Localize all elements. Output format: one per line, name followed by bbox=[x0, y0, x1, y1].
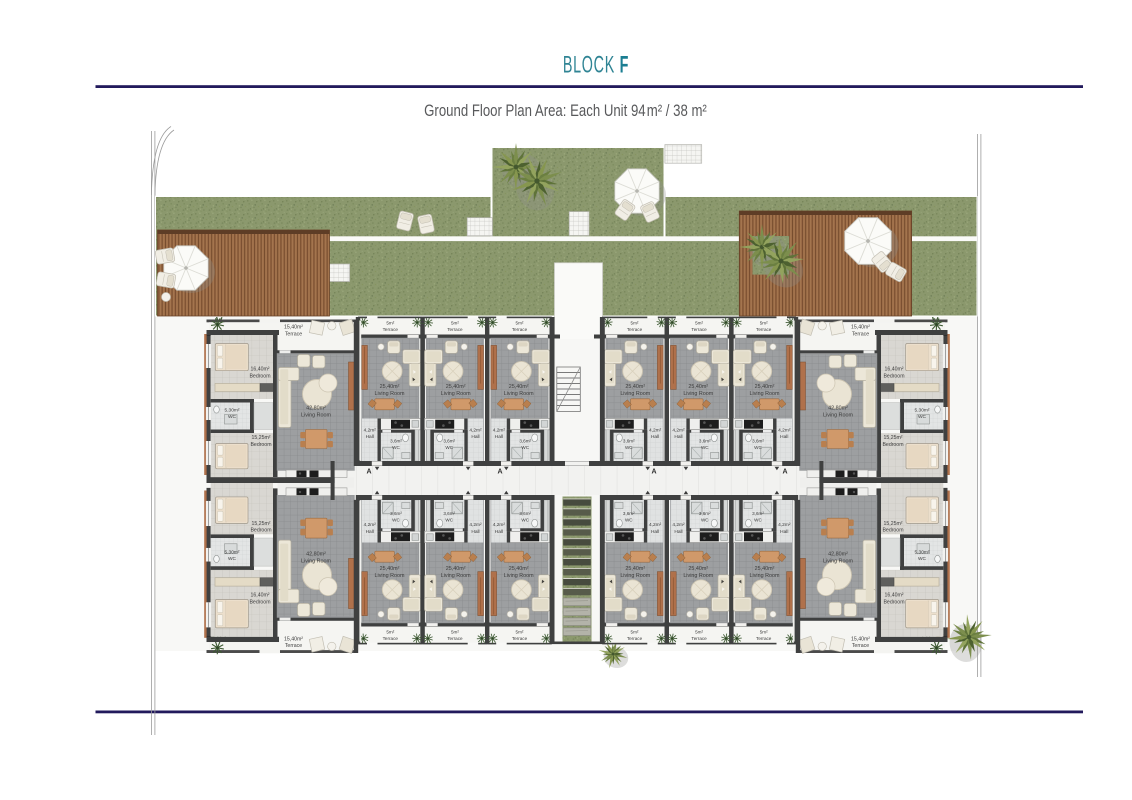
svg-text:Living Room: Living Room bbox=[504, 391, 534, 397]
svg-text:Terrace: Terrace bbox=[383, 327, 399, 332]
svg-text:Living Room: Living Room bbox=[823, 559, 853, 565]
svg-text:Hall: Hall bbox=[471, 529, 479, 535]
svg-text:15,40m²: 15,40m² bbox=[284, 636, 303, 642]
svg-text:4,2m²: 4,2m² bbox=[649, 522, 662, 528]
svg-text:Living Room: Living Room bbox=[375, 391, 405, 397]
svg-text:4,2m²: 4,2m² bbox=[469, 428, 482, 434]
svg-text:Hall: Hall bbox=[674, 434, 682, 440]
svg-text:Living Room: Living Room bbox=[620, 391, 650, 397]
svg-text:25,40m²: 25,40m² bbox=[688, 384, 708, 390]
svg-text:WC: WC bbox=[918, 414, 927, 420]
svg-text:WC: WC bbox=[521, 518, 529, 523]
svg-text:Terrace: Terrace bbox=[691, 327, 707, 332]
svg-text:25,40m²: 25,40m² bbox=[509, 566, 529, 572]
svg-text:Living Room: Living Room bbox=[683, 573, 713, 579]
svg-text:Living Room: Living Room bbox=[750, 573, 780, 579]
svg-text:Bedroom: Bedroom bbox=[250, 442, 271, 448]
svg-text:15,25m²: 15,25m² bbox=[251, 521, 270, 527]
svg-text:Terrace: Terrace bbox=[627, 327, 643, 332]
svg-text:5m²: 5m² bbox=[516, 629, 524, 634]
svg-text:5,30m²: 5,30m² bbox=[225, 408, 240, 414]
svg-text:4,2m²: 4,2m² bbox=[364, 428, 377, 434]
svg-text:3,6m²: 3,6m² bbox=[623, 511, 635, 516]
svg-text:4,2m²: 4,2m² bbox=[469, 522, 482, 528]
svg-text:5m²: 5m² bbox=[631, 320, 639, 325]
svg-text:5,30m²: 5,30m² bbox=[915, 550, 930, 556]
svg-text:WC: WC bbox=[392, 445, 400, 450]
svg-text:3,6m²: 3,6m² bbox=[390, 511, 402, 516]
svg-text:WC: WC bbox=[228, 414, 237, 420]
svg-text:25,40m²: 25,40m² bbox=[380, 384, 400, 390]
svg-text:42,80m²: 42,80m² bbox=[306, 552, 326, 558]
svg-text:WC: WC bbox=[228, 556, 237, 562]
svg-text:16,40m²: 16,40m² bbox=[884, 592, 903, 598]
svg-text:42,80m²: 42,80m² bbox=[828, 552, 848, 558]
svg-text:5,30m²: 5,30m² bbox=[225, 550, 240, 556]
svg-text:Terrace: Terrace bbox=[852, 643, 869, 649]
svg-text:4,2m²: 4,2m² bbox=[672, 428, 685, 434]
svg-text:Terrace: Terrace bbox=[285, 331, 302, 337]
svg-text:5,30m²: 5,30m² bbox=[915, 408, 930, 414]
svg-text:Hall: Hall bbox=[674, 529, 682, 535]
svg-text:A: A bbox=[497, 469, 502, 476]
svg-text:15,25m²: 15,25m² bbox=[883, 435, 902, 441]
svg-text:BLOCK F: BLOCK F bbox=[563, 52, 629, 79]
svg-text:16,40m²: 16,40m² bbox=[884, 367, 903, 373]
svg-text:Living Room: Living Room bbox=[375, 573, 405, 579]
svg-text:25,40m²: 25,40m² bbox=[755, 384, 775, 390]
svg-text:16,40m²: 16,40m² bbox=[250, 592, 269, 598]
svg-text:A: A bbox=[651, 469, 656, 476]
svg-text:3,6m²: 3,6m² bbox=[519, 439, 531, 444]
svg-text:WC: WC bbox=[625, 445, 633, 450]
svg-text:3,6m²: 3,6m² bbox=[443, 439, 455, 444]
svg-text:5m²: 5m² bbox=[695, 629, 703, 634]
svg-text:WC: WC bbox=[754, 445, 762, 450]
svg-text:25,40m²: 25,40m² bbox=[446, 384, 466, 390]
svg-text:4,2m²: 4,2m² bbox=[672, 522, 685, 528]
svg-text:Living Room: Living Room bbox=[441, 391, 471, 397]
svg-text:WC: WC bbox=[625, 518, 633, 523]
svg-text:Hall: Hall bbox=[471, 434, 479, 440]
svg-text:Living Room: Living Room bbox=[620, 573, 650, 579]
svg-text:Bedroom: Bedroom bbox=[883, 599, 904, 605]
svg-text:42,80m²: 42,80m² bbox=[828, 406, 848, 412]
svg-text:4,2m²: 4,2m² bbox=[493, 428, 506, 434]
svg-text:3,6m²: 3,6m² bbox=[699, 511, 711, 516]
svg-text:Living Room: Living Room bbox=[683, 391, 713, 397]
svg-text:Hall: Hall bbox=[780, 434, 788, 440]
svg-text:42,80m²: 42,80m² bbox=[306, 406, 326, 412]
svg-text:Terrace: Terrace bbox=[756, 636, 772, 641]
svg-text:4,2m²: 4,2m² bbox=[364, 522, 377, 528]
svg-text:Living Room: Living Room bbox=[301, 413, 331, 419]
svg-text:Terrace: Terrace bbox=[756, 327, 772, 332]
svg-text:16,40m²: 16,40m² bbox=[250, 367, 269, 373]
svg-text:3,6m²: 3,6m² bbox=[443, 511, 455, 516]
svg-text:Terrace: Terrace bbox=[512, 327, 528, 332]
svg-text:5m²: 5m² bbox=[695, 320, 703, 325]
svg-text:15,40m²: 15,40m² bbox=[851, 636, 870, 642]
svg-text:WC: WC bbox=[701, 445, 709, 450]
svg-text:5m²: 5m² bbox=[451, 629, 459, 634]
svg-text:WC: WC bbox=[701, 518, 709, 523]
svg-text:25,40m²: 25,40m² bbox=[625, 384, 645, 390]
svg-text:15,40m²: 15,40m² bbox=[284, 325, 303, 331]
svg-text:A: A bbox=[366, 469, 371, 476]
svg-text:WC: WC bbox=[918, 556, 927, 562]
svg-text:Bedroom: Bedroom bbox=[882, 442, 903, 448]
svg-text:5m²: 5m² bbox=[631, 629, 639, 634]
svg-text:Terrace: Terrace bbox=[285, 643, 302, 649]
svg-text:15,40m²: 15,40m² bbox=[851, 325, 870, 331]
svg-text:Hall: Hall bbox=[495, 434, 503, 440]
svg-text:Terrace: Terrace bbox=[852, 331, 869, 337]
svg-text:3,6m²: 3,6m² bbox=[390, 439, 402, 444]
svg-text:25,40m²: 25,40m² bbox=[380, 566, 400, 572]
svg-text:4,2m²: 4,2m² bbox=[778, 428, 791, 434]
svg-text:3,6m²: 3,6m² bbox=[699, 439, 711, 444]
svg-text:5m²: 5m² bbox=[386, 320, 394, 325]
svg-text:Living Room: Living Room bbox=[823, 413, 853, 419]
svg-text:A: A bbox=[782, 469, 787, 476]
svg-text:Living Room: Living Room bbox=[504, 573, 534, 579]
svg-text:25,40m²: 25,40m² bbox=[446, 566, 466, 572]
svg-text:Living Room: Living Room bbox=[441, 573, 471, 579]
svg-text:Hall: Hall bbox=[651, 434, 659, 440]
svg-text:Hall: Hall bbox=[651, 529, 659, 535]
svg-text:WC: WC bbox=[392, 518, 400, 523]
svg-text:3,6m²: 3,6m² bbox=[623, 439, 635, 444]
svg-text:25,40m²: 25,40m² bbox=[688, 566, 708, 572]
svg-text:Bedroom: Bedroom bbox=[883, 373, 904, 379]
svg-text:Hall: Hall bbox=[366, 434, 374, 440]
svg-text:4,2m²: 4,2m² bbox=[778, 522, 791, 528]
svg-text:25,40m²: 25,40m² bbox=[625, 566, 645, 572]
svg-text:Bedroom: Bedroom bbox=[249, 373, 270, 379]
svg-text:5m²: 5m² bbox=[451, 320, 459, 325]
svg-text:WC: WC bbox=[521, 445, 529, 450]
svg-text:Bedroom: Bedroom bbox=[250, 528, 271, 534]
svg-text:Terrace: Terrace bbox=[691, 636, 707, 641]
svg-text:5m²: 5m² bbox=[516, 320, 524, 325]
svg-text:3,6m²: 3,6m² bbox=[519, 511, 531, 516]
svg-text:Terrace: Terrace bbox=[512, 636, 528, 641]
svg-text:5m²: 5m² bbox=[386, 629, 394, 634]
svg-text:Living Room: Living Room bbox=[301, 559, 331, 565]
svg-text:Terrace: Terrace bbox=[627, 636, 643, 641]
svg-text:Terrace: Terrace bbox=[383, 636, 399, 641]
svg-text:25,40m²: 25,40m² bbox=[509, 384, 529, 390]
svg-text:Ground Floor Plan Area: Each U: Ground Floor Plan Area: Each Unit 94 m² … bbox=[424, 103, 707, 121]
svg-text:4,2m²: 4,2m² bbox=[649, 428, 662, 434]
svg-text:WC: WC bbox=[445, 445, 453, 450]
svg-text:Living Room: Living Room bbox=[750, 391, 780, 397]
svg-text:15,25m²: 15,25m² bbox=[251, 435, 270, 441]
svg-text:Hall: Hall bbox=[780, 529, 788, 535]
svg-text:Bedroom: Bedroom bbox=[249, 599, 270, 605]
svg-text:3,6m²: 3,6m² bbox=[752, 511, 764, 516]
svg-text:Hall: Hall bbox=[495, 529, 503, 535]
svg-text:Terrace: Terrace bbox=[447, 327, 463, 332]
svg-text:3,6m²: 3,6m² bbox=[752, 439, 764, 444]
svg-text:Hall: Hall bbox=[366, 529, 374, 535]
svg-text:Bedroom: Bedroom bbox=[882, 528, 903, 534]
svg-text:25,40m²: 25,40m² bbox=[755, 566, 775, 572]
svg-text:5m²: 5m² bbox=[760, 629, 768, 634]
svg-text:WC: WC bbox=[445, 518, 453, 523]
svg-text:WC: WC bbox=[754, 518, 762, 523]
svg-text:15,25m²: 15,25m² bbox=[883, 521, 902, 527]
svg-text:5m²: 5m² bbox=[760, 320, 768, 325]
svg-text:Terrace: Terrace bbox=[447, 636, 463, 641]
svg-text:4,2m²: 4,2m² bbox=[493, 522, 506, 528]
